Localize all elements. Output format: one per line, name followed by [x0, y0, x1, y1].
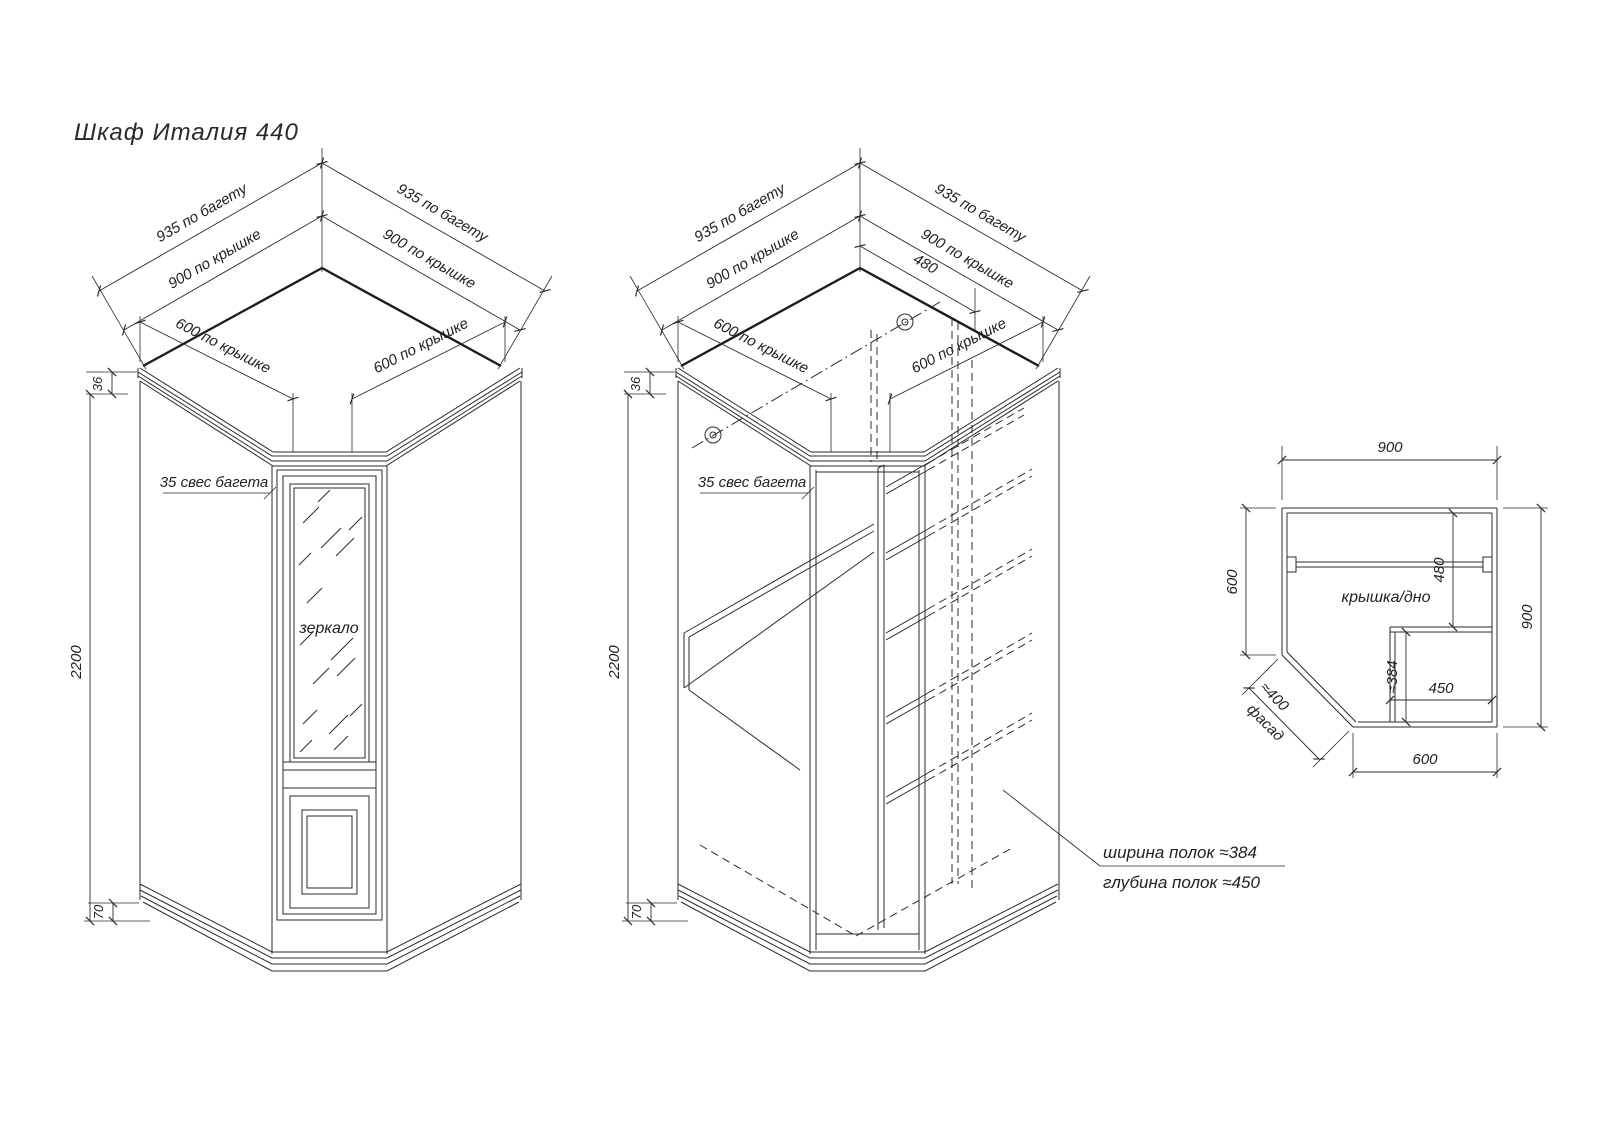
- dim-plinth-height: 70: [91, 904, 106, 919]
- note-shelf-width: ширина полок ≈384: [1103, 843, 1257, 862]
- plan-dim-bottom: 600: [1412, 751, 1438, 768]
- note-shelf-depth: глубина полок ≈450: [1103, 873, 1260, 892]
- dim-height-2: 2200: [606, 645, 623, 680]
- dim-crown-height: 36: [90, 376, 105, 391]
- plan-panel-label: крышка/дно: [1342, 589, 1431, 606]
- dim-height: 2200: [68, 645, 85, 680]
- dim-plinth-height-2: 70: [629, 904, 644, 919]
- dim-crown-height-2: 36: [628, 376, 643, 391]
- view-section-isometric: 935 по багету 900 по крышке 935 по багет…: [606, 148, 1285, 971]
- plan-dim-shelf-width: ≈384: [1384, 660, 1401, 693]
- view-plan: крышка/дно 900 600 480 900 ≈384 450 600: [1224, 439, 1548, 778]
- note-overhang-2: 35 свес багета: [698, 474, 807, 491]
- mirror-label: зеркало: [298, 620, 358, 637]
- rail-board: [684, 524, 874, 770]
- plan-inner-corner: [1390, 627, 1492, 722]
- note-overhang: 35 свес багета: [160, 474, 269, 491]
- mirror-door: зеркало: [277, 470, 382, 920]
- dim-top-left-2: 900 по крышке: [703, 226, 802, 293]
- dim-side-right-2: 600 по крышке: [909, 315, 1010, 377]
- blueprint-canvas: Шкаф Италия 440: [0, 0, 1600, 1130]
- crown-molding-2: [676, 368, 1060, 466]
- dim-top-right: 900 по крышке: [380, 226, 479, 293]
- page-title: Шкаф Италия 440: [74, 119, 299, 146]
- section-view-dimensions: 935 по багету 900 по крышке 935 по багет…: [606, 163, 1090, 921]
- plan-dim-top: 900: [1377, 439, 1403, 456]
- front-view-dimensions: 935 по багету 900 по крышке 935 по багет…: [68, 163, 552, 921]
- shelves: [886, 408, 1032, 804]
- plinth: [140, 884, 521, 971]
- view-front-isometric: зеркало 935 по багету 900 по кры: [68, 148, 552, 971]
- shelf-annotation: ширина полок ≈384 глубина полок ≈450: [1003, 790, 1285, 892]
- plan-dim-shelf-depth: 450: [1428, 680, 1454, 697]
- plinth-2: [678, 884, 1059, 971]
- plan-dim-depth: 480: [1431, 557, 1448, 583]
- plan-dim-left: 600: [1224, 569, 1241, 595]
- plan-rod: [1287, 557, 1492, 572]
- dim-divider-offset: 480: [910, 250, 941, 278]
- dim-top-left: 900 по крышке: [165, 226, 264, 293]
- interior: [684, 302, 1032, 936]
- dim-side-right: 600 по крышке: [371, 315, 472, 377]
- plan-dim-right: 900: [1519, 604, 1536, 630]
- blueprint-svg: Шкаф Италия 440: [0, 0, 1600, 1130]
- crown-molding: [138, 368, 522, 466]
- divider-panel: [878, 465, 884, 930]
